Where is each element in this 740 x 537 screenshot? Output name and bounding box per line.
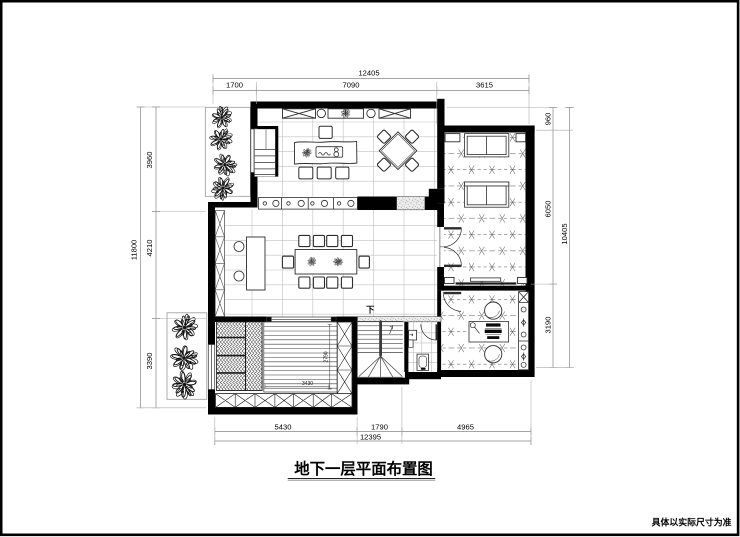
svg-text:4965: 4965 — [457, 423, 474, 432]
svg-text:960: 960 — [543, 113, 552, 126]
svg-text:具体以实际尺寸为准: 具体以实际尺寸为准 — [651, 517, 732, 528]
svg-text:3390: 3390 — [145, 353, 154, 370]
svg-text:3190: 3190 — [543, 317, 552, 334]
svg-text:6050: 6050 — [543, 201, 552, 218]
svg-text:3430: 3430 — [302, 381, 313, 387]
svg-text:1790: 1790 — [371, 423, 388, 432]
svg-text:下: 下 — [366, 305, 375, 315]
svg-text:10405: 10405 — [560, 223, 569, 244]
svg-text:地下一层平面布置图: 地下一层平面布置图 — [294, 459, 433, 478]
svg-text:1700: 1700 — [226, 81, 243, 90]
svg-text:7090: 7090 — [343, 81, 360, 90]
svg-text:4210: 4210 — [145, 240, 154, 257]
svg-text:3960: 3960 — [145, 152, 154, 169]
svg-text:3615: 3615 — [476, 81, 493, 90]
svg-text:5430: 5430 — [275, 423, 292, 432]
svg-text:12405: 12405 — [358, 69, 379, 78]
svg-text:12395: 12395 — [360, 432, 381, 441]
svg-text:11800: 11800 — [130, 240, 139, 261]
svg-text:2790: 2790 — [324, 351, 330, 362]
